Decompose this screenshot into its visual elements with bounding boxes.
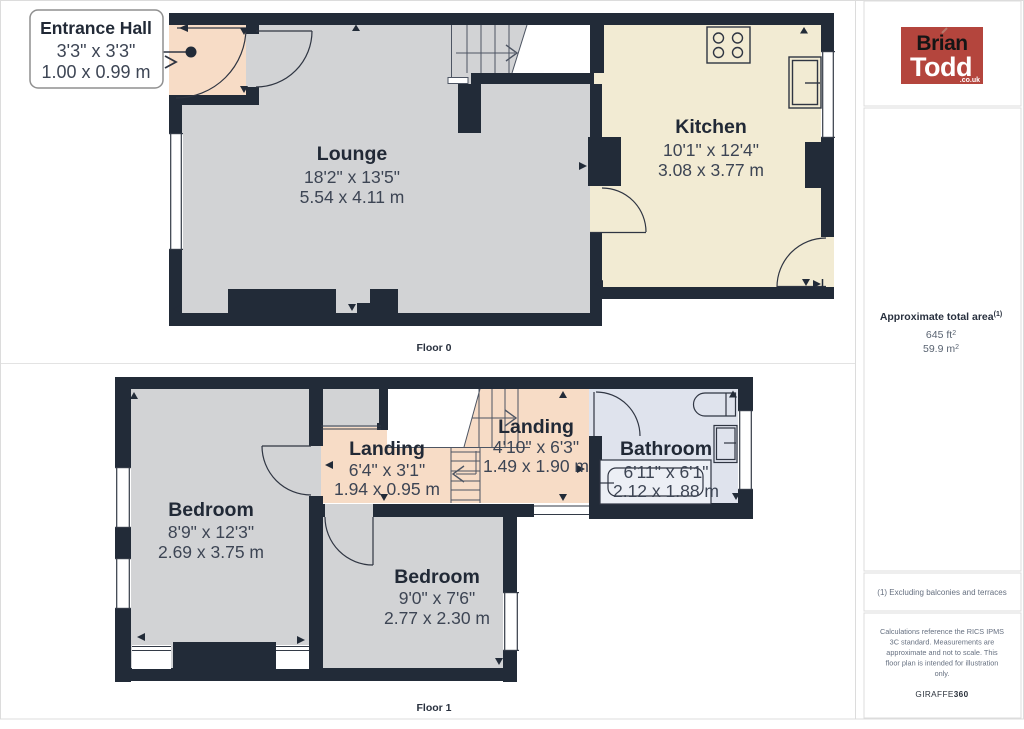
svg-text:3.08 x 3.77 m: 3.08 x 3.77 m	[658, 160, 764, 180]
svg-text:Kitchen: Kitchen	[675, 116, 747, 138]
svg-text:8'9" x 12'3": 8'9" x 12'3"	[168, 522, 254, 542]
svg-text:6'4" x 3'1": 6'4" x 3'1"	[349, 460, 426, 480]
svg-text:18'2" x 13'5": 18'2" x 13'5"	[304, 167, 400, 187]
svg-text:Bedroom: Bedroom	[394, 566, 480, 588]
svg-text:3'3" x 3'3": 3'3" x 3'3"	[57, 41, 136, 61]
svg-text:1.49 x 1.90 m: 1.49 x 1.90 m	[483, 456, 589, 476]
svg-text:1.00 x 0.99 m: 1.00 x 0.99 m	[41, 62, 150, 82]
svg-text:approximate and not to scale.: approximate and not to scale. This	[886, 648, 998, 657]
svg-text:.co.uk: .co.uk	[960, 77, 980, 84]
svg-text:Floor 0: Floor 0	[416, 342, 451, 354]
svg-text:only.: only.	[935, 669, 950, 678]
svg-text:3C standard. Measurements are: 3C standard. Measurements are	[890, 638, 995, 647]
svg-text:floor plan is intended for ill: floor plan is intended for illustration	[886, 659, 999, 668]
svg-text:2.77 x 2.30 m: 2.77 x 2.30 m	[384, 608, 490, 628]
svg-text:4'10" x 6'3": 4'10" x 6'3"	[493, 437, 579, 457]
svg-text:Floor 1: Floor 1	[416, 702, 451, 714]
svg-text:Landing: Landing	[349, 438, 425, 460]
svg-text:6'11" x 6'1": 6'11" x 6'1"	[624, 462, 709, 482]
svg-text:2.12 x 1.88 m: 2.12 x 1.88 m	[613, 481, 719, 501]
svg-text:9'0" x 7'6": 9'0" x 7'6"	[399, 588, 476, 608]
svg-text:Entrance Hall: Entrance Hall	[40, 18, 152, 38]
svg-text:2.69 x 3.75 m: 2.69 x 3.75 m	[158, 542, 264, 562]
svg-text:1.94 x 0.95 m: 1.94 x 0.95 m	[334, 479, 440, 499]
svg-text:59.9 m2: 59.9 m2	[923, 343, 959, 355]
svg-text:10'1" x 12'4": 10'1" x 12'4"	[663, 140, 759, 160]
svg-text:Bedroom: Bedroom	[168, 499, 254, 521]
svg-text:Approximate total area(1): Approximate total area(1)	[880, 311, 1002, 323]
svg-text:Lounge: Lounge	[317, 143, 388, 165]
svg-text:GIRAFFE360: GIRAFFE360	[915, 690, 968, 699]
svg-text:Calculations reference the RIC: Calculations reference the RICS IPMS	[880, 627, 1004, 636]
svg-text:Landing: Landing	[498, 416, 574, 438]
svg-text:Bathroom: Bathroom	[620, 438, 712, 460]
svg-text:(1) Excluding balconies and te: (1) Excluding balconies and terraces	[877, 588, 1006, 597]
svg-text:5.54 x 4.11 m: 5.54 x 4.11 m	[300, 187, 405, 207]
svg-text:645 ft2: 645 ft2	[926, 329, 956, 341]
